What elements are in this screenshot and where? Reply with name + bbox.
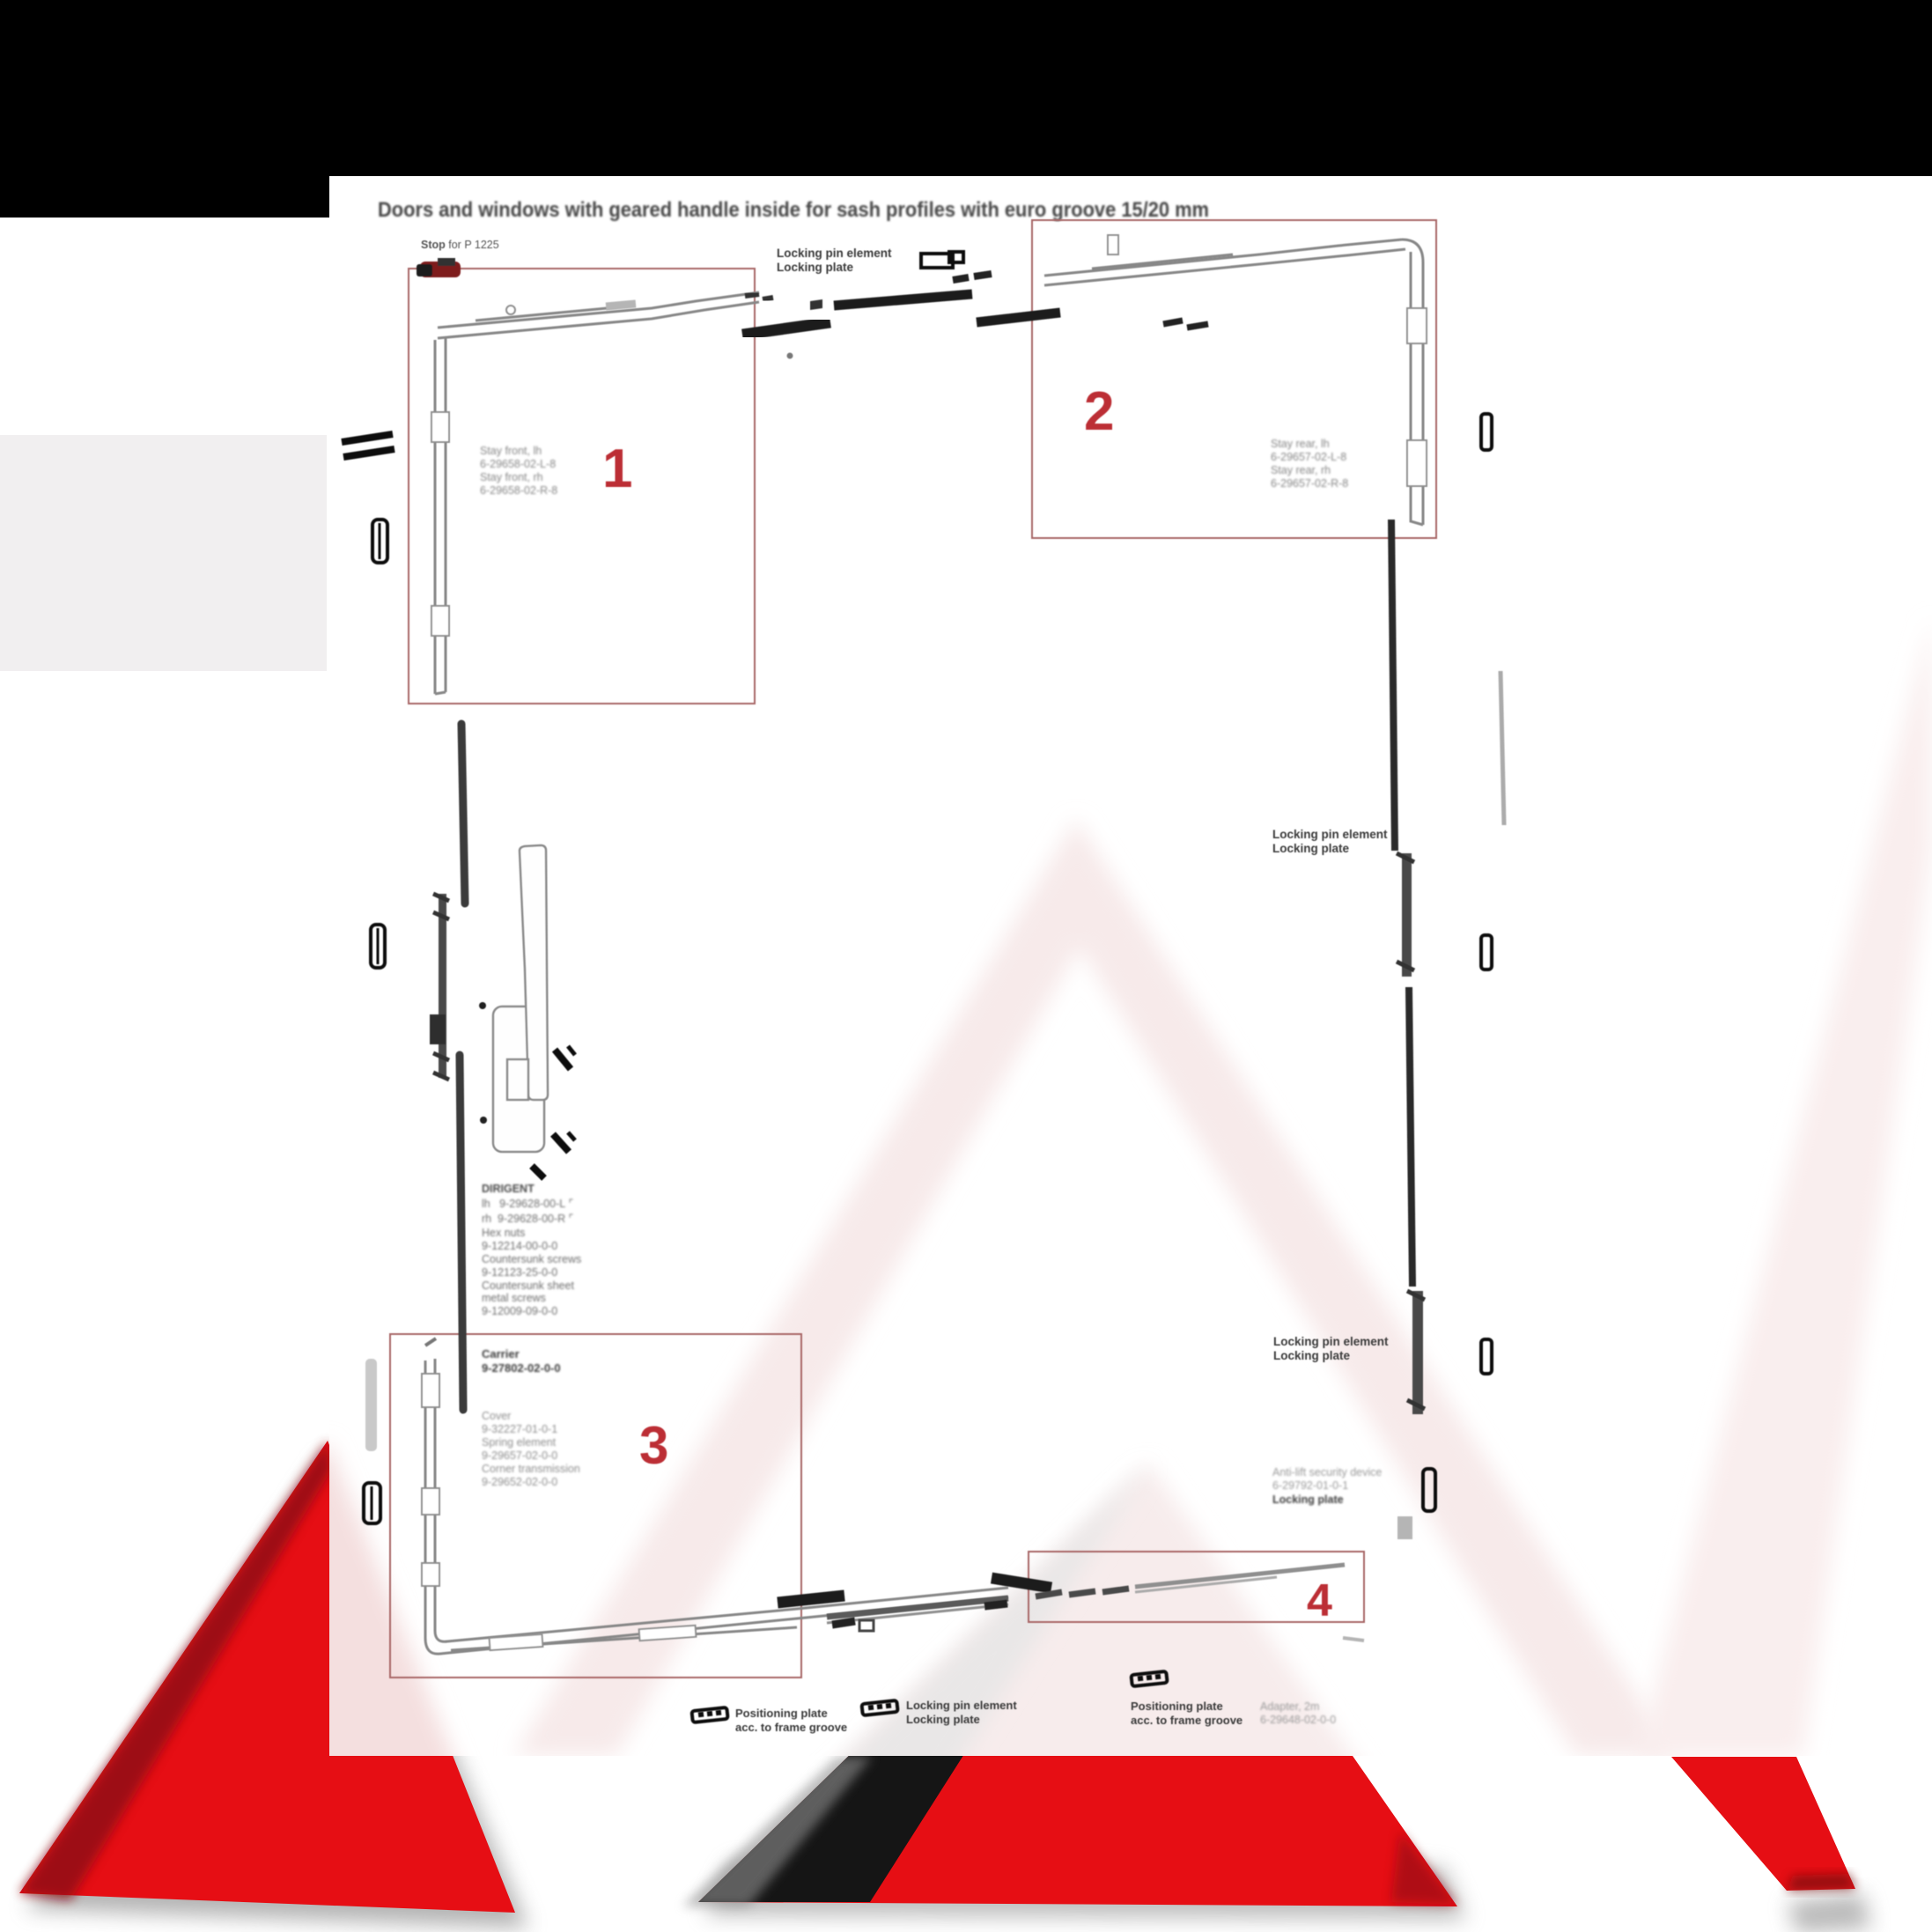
svg-text:Positioning plate: Positioning plate bbox=[735, 1707, 828, 1720]
svg-text:Countersunk sheet: Countersunk sheet bbox=[482, 1279, 574, 1292]
svg-text:Hex nuts: Hex nuts bbox=[482, 1227, 525, 1239]
svg-text:Locking pin element: Locking pin element bbox=[1272, 828, 1388, 841]
svg-text:Positioning plate: Positioning plate bbox=[1131, 1700, 1223, 1713]
svg-text:Corner transmission: Corner transmission bbox=[482, 1463, 580, 1475]
svg-text:Anti-lift security device: Anti-lift security device bbox=[1272, 1466, 1382, 1478]
svg-text:2: 2 bbox=[1084, 381, 1114, 442]
svg-text:Countersunk screws: Countersunk screws bbox=[482, 1253, 581, 1265]
svg-text:metal screws: metal screws bbox=[482, 1292, 546, 1304]
svg-text:9-12123-25-0-0: 9-12123-25-0-0 bbox=[482, 1266, 557, 1279]
svg-text:Spring element: Spring element bbox=[482, 1436, 557, 1449]
svg-text:Locking pin element: Locking pin element bbox=[777, 247, 892, 260]
svg-text:Locking pin element: Locking pin element bbox=[1273, 1335, 1389, 1348]
svg-text:Stop for P 1225: Stop for P 1225 bbox=[421, 239, 499, 251]
svg-text:Locking plate: Locking plate bbox=[906, 1713, 980, 1726]
svg-text:Doors and windows with geared: Doors and windows with geared handle ins… bbox=[378, 198, 1209, 222]
svg-text:Locking pin element: Locking pin element bbox=[906, 1699, 1017, 1712]
svg-text:Carrier: Carrier bbox=[482, 1347, 520, 1361]
svg-text:6-29658-02-L-8: 6-29658-02-L-8 bbox=[480, 458, 556, 470]
svg-text:acc. to frame groove: acc. to frame groove bbox=[1131, 1714, 1243, 1727]
svg-text:Stay rear, rh: Stay rear, rh bbox=[1271, 464, 1331, 476]
svg-text:Cover: Cover bbox=[482, 1410, 511, 1422]
svg-text:6-29648-02-0-0: 6-29648-02-0-0 bbox=[1260, 1714, 1336, 1726]
svg-text:6-29657-02-L-8: 6-29657-02-L-8 bbox=[1271, 451, 1346, 463]
svg-text:9-12009-09-0-0: 9-12009-09-0-0 bbox=[482, 1305, 557, 1317]
svg-text:Stay rear, lh: Stay rear, lh bbox=[1271, 438, 1330, 450]
svg-text:6-29658-02-R-8: 6-29658-02-R-8 bbox=[480, 484, 557, 497]
svg-text:Adapter, 2m: Adapter, 2m bbox=[1260, 1700, 1319, 1713]
svg-text:Stay front, lh: Stay front, lh bbox=[480, 445, 542, 457]
svg-text:9-32227-01-0-1: 9-32227-01-0-1 bbox=[482, 1423, 557, 1435]
svg-text:6-29657-02-R-8: 6-29657-02-R-8 bbox=[1271, 477, 1348, 490]
svg-text:9-29657-02-0-0: 9-29657-02-0-0 bbox=[482, 1449, 557, 1462]
svg-text:9-27802-02-0-0: 9-27802-02-0-0 bbox=[482, 1361, 561, 1375]
svg-text:9-12214-00-0-0: 9-12214-00-0-0 bbox=[482, 1240, 557, 1252]
svg-text:4: 4 bbox=[1307, 1575, 1332, 1626]
svg-text:rh 9-29628-00-R ⌜: rh 9-29628-00-R ⌜ bbox=[482, 1213, 574, 1225]
svg-text:lh 9-29628-00-L ⌜: lh 9-29628-00-L ⌜ bbox=[482, 1198, 574, 1210]
svg-text:Locking plate: Locking plate bbox=[1272, 842, 1350, 855]
svg-text:Locking plate: Locking plate bbox=[1273, 1349, 1351, 1362]
svg-text:6-29792-01-0-1: 6-29792-01-0-1 bbox=[1272, 1479, 1348, 1492]
svg-text:DIRIGENT: DIRIGENT bbox=[482, 1183, 535, 1195]
svg-text:Stay front, rh: Stay front, rh bbox=[480, 471, 543, 483]
svg-text:3: 3 bbox=[639, 1416, 668, 1475]
svg-text:Locking plate: Locking plate bbox=[777, 261, 854, 274]
svg-text:1: 1 bbox=[602, 439, 632, 499]
svg-text:9-29652-02-0-0: 9-29652-02-0-0 bbox=[482, 1476, 557, 1488]
svg-text:acc. to frame groove: acc. to frame groove bbox=[735, 1721, 847, 1734]
svg-text:Locking plate: Locking plate bbox=[1272, 1493, 1344, 1506]
